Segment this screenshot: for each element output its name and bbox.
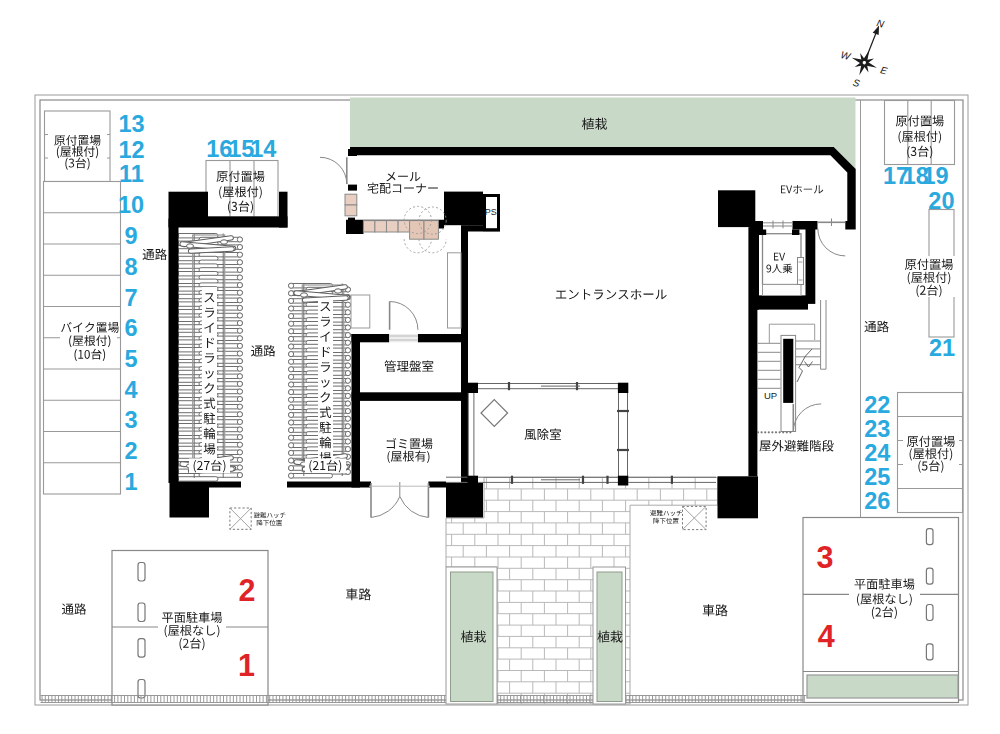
svg-text:1: 1: [124, 469, 137, 495]
svg-text:8: 8: [124, 254, 137, 280]
svg-text:11: 11: [119, 161, 144, 187]
svg-text:20: 20: [928, 188, 954, 214]
svg-text:6: 6: [124, 315, 137, 341]
svg-text:24: 24: [864, 440, 890, 466]
svg-text:25: 25: [864, 464, 890, 490]
svg-text:UP: UP: [764, 390, 777, 401]
svg-text:9: 9: [124, 223, 137, 249]
svg-text:5: 5: [124, 346, 137, 372]
svg-text:23: 23: [864, 416, 890, 442]
svg-text:4: 4: [818, 619, 835, 653]
svg-text:4: 4: [124, 377, 137, 403]
svg-text:13: 13: [118, 111, 144, 137]
svg-text:10: 10: [118, 192, 144, 218]
svg-text:22: 22: [864, 392, 890, 418]
svg-text:PS: PS: [485, 207, 497, 217]
svg-text:2: 2: [124, 438, 137, 464]
svg-text:12: 12: [118, 137, 144, 163]
svg-text:26: 26: [864, 488, 890, 514]
svg-text:14: 14: [250, 136, 276, 162]
svg-text:19: 19: [923, 163, 949, 189]
svg-text:21: 21: [929, 335, 955, 361]
svg-text:7: 7: [124, 285, 137, 311]
svg-text:1: 1: [238, 648, 255, 682]
svg-text:2: 2: [238, 573, 255, 607]
svg-text:3: 3: [124, 407, 137, 433]
svg-text:3: 3: [817, 540, 834, 574]
